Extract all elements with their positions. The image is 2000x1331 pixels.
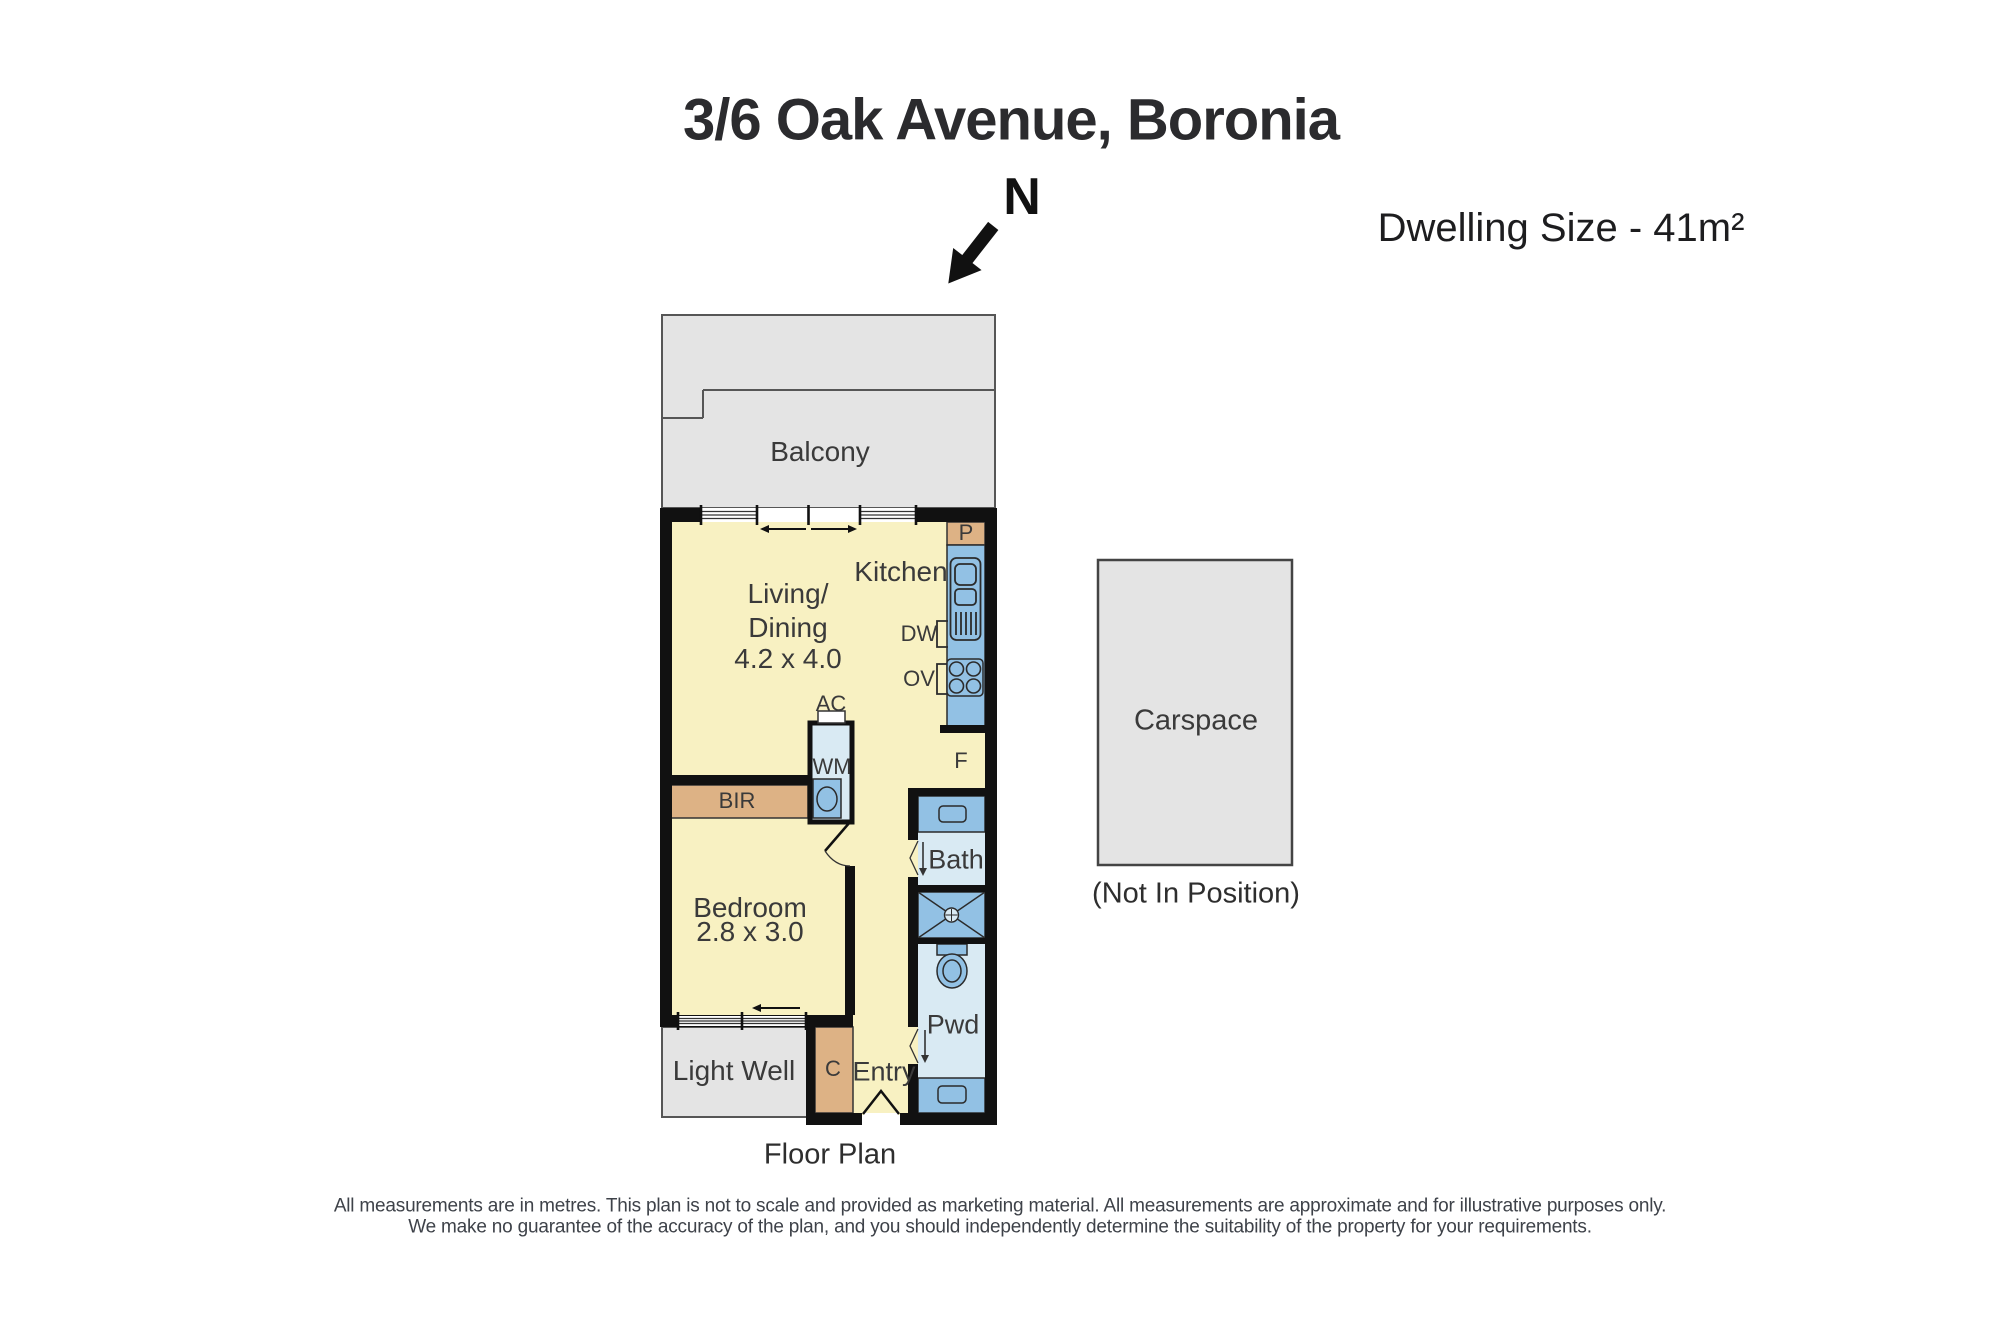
page-title: 3/6 Oak Avenue, Boronia (683, 87, 1339, 154)
washing-machine-fixture (813, 779, 841, 818)
bedroom-dims-label: 2.8 x 3.0 (696, 918, 803, 946)
cupboard-label: C (825, 1058, 841, 1080)
floor-plan-page: 3/6 Oak Avenue, Boronia N Dwelling Size … (0, 0, 2000, 1331)
entry-label: Entry (852, 1059, 915, 1086)
light-well-label: Light Well (673, 1057, 795, 1085)
balcony-area (662, 315, 995, 508)
fridge-label: F (954, 750, 967, 772)
bath-label: Bath (928, 847, 984, 874)
disclaimer-line1: All measurements are in metres. This pla… (334, 1197, 1666, 1216)
balcony-label: Balcony (770, 438, 870, 466)
washing-machine-label: WM (812, 756, 851, 778)
pwd-label: Pwd (927, 1012, 980, 1039)
oven-label: OV (903, 668, 935, 690)
north-arrow-icon (934, 215, 1007, 295)
carspace-note-label: (Not In Position) (1092, 880, 1300, 909)
living-label-line1: Living/ (748, 580, 829, 608)
carspace-label: Carspace (1134, 707, 1258, 736)
pantry-label: P (959, 522, 974, 544)
disclaimer-line2: We make no guarantee of the accuracy of … (408, 1218, 1592, 1237)
pwd-vanity-fixture (918, 1078, 985, 1113)
kitchen-label: Kitchen (854, 558, 947, 586)
cooktop-fixture (947, 659, 983, 696)
living-label-line2: Dining (748, 614, 827, 642)
dishwasher-label: DW (901, 623, 938, 645)
toilet-fixture (937, 944, 967, 988)
aircon-label: AC (816, 693, 847, 715)
dwelling-size-label: Dwelling Size - 41m² (1378, 208, 1745, 248)
floor-plan-caption: Floor Plan (764, 1141, 896, 1170)
built-in-robe-label: BIR (719, 790, 756, 812)
living-dims-label: 4.2 x 4.0 (734, 645, 841, 673)
floor-plan-drawing (0, 0, 2000, 1331)
shower-fixture (918, 892, 985, 938)
bath-vanity-fixture (918, 796, 985, 832)
north-label: N (1003, 171, 1041, 223)
